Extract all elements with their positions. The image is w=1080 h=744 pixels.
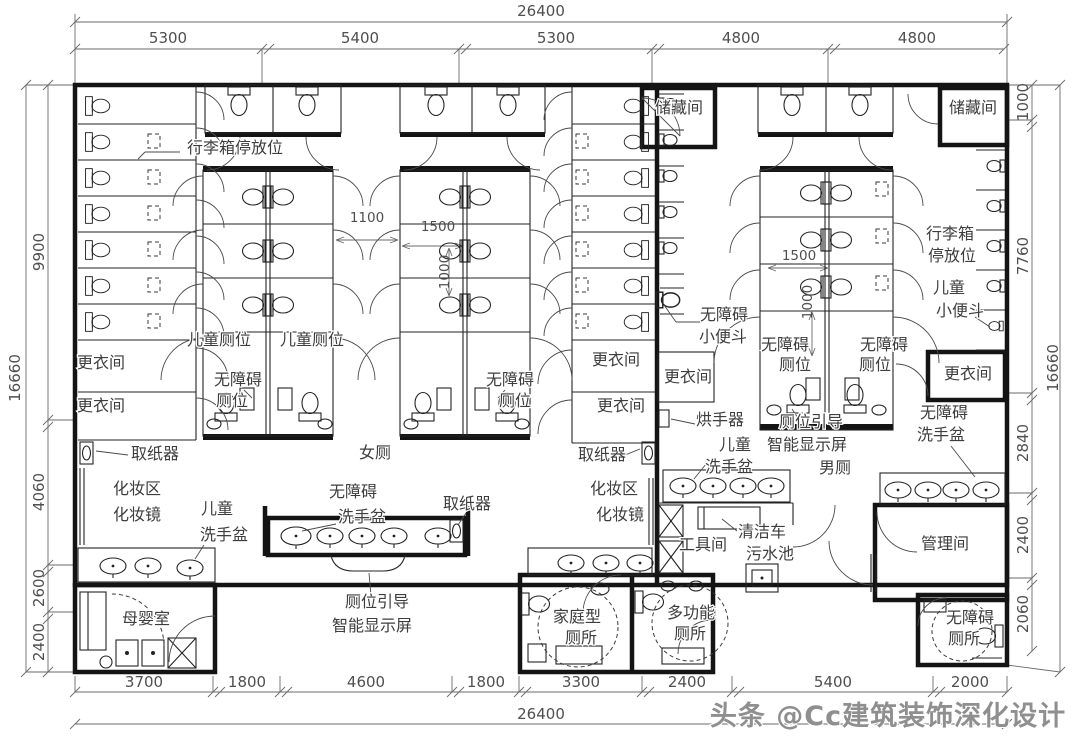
dim-stall-width-w: 1000 [437, 255, 453, 289]
label-paper-dispenser-c: 取纸器 [443, 494, 491, 513]
dim-bottom-overall: 26400 [517, 705, 565, 723]
label-makeup-mirror-c: 化妆镜 [596, 505, 644, 524]
label-guide-screen-w1: 厕位引导 [345, 592, 409, 611]
watermark: 头条 @Cc建筑装饰深化设计 [710, 700, 1066, 732]
label-child-urinal-2: 小便斗 [936, 301, 984, 320]
label-luggage-right-2: 停放位 [928, 246, 976, 265]
label-luggage-parking-left: 行李箱停放位 [187, 138, 283, 157]
dim-stall-width-m: 1000 [800, 285, 816, 319]
label-multifunction-toilet-1: 多功能 [667, 603, 715, 622]
label-acc-stall-m1b: 厕位 [779, 355, 811, 374]
label-storage-right: 储藏间 [949, 98, 997, 117]
label-family-toilet-1: 家庭型 [553, 607, 601, 626]
label-sewage-sink: 污水池 [746, 544, 794, 563]
dim-left-1: 9900 [30, 233, 48, 271]
label-hand-dryer: 烘手器 [696, 410, 744, 429]
dim-top-2: 5400 [341, 29, 379, 47]
dim-left-overall: 16660 [6, 354, 24, 402]
label-acc-stall-m2b: 厕位 [859, 355, 891, 374]
label-acc-stall-m1a: 无障碍 [761, 335, 809, 354]
floor-plan-sheet: 26400 5300 5400 5300 4800 4800 16660 990… [0, 0, 1080, 744]
label-child-urinal-1: 儿童 [933, 278, 965, 297]
label-multifunction-toilet-2: 厕所 [674, 624, 706, 643]
dim-top-overall: 26400 [517, 2, 565, 20]
label-cleaning-cart: 清洁车 [738, 522, 786, 541]
label-makeup-area-l: 化妆区 [113, 479, 161, 498]
label-child-stall-1: 儿童厕位 [187, 330, 251, 349]
dim-bottom-4: 1800 [467, 673, 505, 691]
label-acc-urinal-2: 小便斗 [699, 327, 747, 346]
dim-top-5: 4800 [898, 29, 936, 47]
dim-bottom-3: 4600 [347, 673, 385, 691]
dim-bottom-6: 2400 [668, 673, 706, 691]
label-child-basin-l1: 儿童 [201, 499, 233, 518]
label-accessible-stall-1a: 无障碍 [214, 370, 262, 389]
dim-bottom-2: 1800 [228, 673, 266, 691]
plan-graphics [21, 14, 1065, 729]
label-luggage-right-1: 行李箱 [926, 224, 974, 243]
label-management-room: 管理间 [921, 534, 969, 553]
label-guide-screen-m1: 厕位引导 [779, 412, 843, 431]
label-makeup-mirror-l: 化妆镜 [113, 505, 161, 524]
dim-right-1: 1000 [1014, 83, 1032, 121]
label-guide-screen-w2: 智能显示屏 [332, 616, 412, 635]
label-acc-basin-c1: 无障碍 [329, 482, 377, 501]
dim-left-3: 2600 [30, 569, 48, 607]
label-child-basin-l2: 洗手盆 [200, 525, 248, 544]
label-child-basin-m2: 洗手盆 [705, 457, 753, 476]
dim-bottom-7: 5400 [814, 673, 852, 691]
label-changing-room-l1: 更衣间 [77, 353, 125, 372]
label-acc-stall-m2a: 无障碍 [860, 335, 908, 354]
label-changing-room-m: 更衣间 [664, 367, 712, 386]
dim-right-4: 2400 [1014, 516, 1032, 554]
label-paper-dispenser-c2: 取纸器 [578, 445, 626, 464]
label-child-stall-2: 儿童厕位 [280, 330, 344, 349]
label-mother-baby-room: 母婴室 [122, 609, 170, 628]
dimension-lines [21, 14, 1065, 729]
dim-bottom-8: 2000 [951, 673, 989, 691]
label-makeup-area-c: 化妆区 [590, 479, 638, 498]
label-family-toilet-2: 厕所 [565, 628, 597, 647]
label-women-toilet: 女厕 [359, 443, 391, 462]
label-acc-basin-c2: 洗手盆 [338, 507, 386, 526]
dim-aisle-1100: 1100 [350, 210, 384, 226]
dim-bottom-1: 3700 [125, 673, 163, 691]
dim-top-1: 5300 [149, 29, 187, 47]
dim-right-3: 2840 [1014, 424, 1032, 462]
dim-top-4: 4800 [722, 29, 760, 47]
dim-bottom-5: 3300 [562, 673, 600, 691]
dim-top-3: 5300 [537, 29, 575, 47]
label-accessible-stall-2a: 无障碍 [486, 370, 534, 389]
dim-stall-depth-m: 1500 [782, 248, 816, 264]
label-accessible-stall-2b: 厕位 [499, 391, 531, 410]
label-storage-center: 储藏间 [655, 98, 703, 117]
label-changing-room-c1: 更衣间 [592, 350, 640, 369]
dim-left-2: 4060 [30, 473, 48, 511]
dim-stall-depth-w: 1500 [421, 219, 455, 235]
floor-plan: 26400 5300 5400 5300 4800 4800 16660 990… [0, 0, 1080, 744]
label-guide-screen-m2: 智能显示屏 [767, 435, 847, 454]
label-acc-toilet-br2: 厕所 [948, 629, 980, 648]
dim-right-2: 7760 [1014, 237, 1032, 275]
label-acc-basin-r2: 洗手盆 [917, 425, 965, 444]
label-paper-dispenser-l: 取纸器 [131, 444, 179, 463]
dim-left-4: 2400 [30, 623, 48, 661]
label-men-toilet: 男厕 [819, 458, 851, 477]
label-tool-room: 工具间 [679, 535, 727, 554]
label-acc-basin-r1: 无障碍 [920, 403, 968, 422]
label-changing-room-l2: 更衣间 [77, 396, 125, 415]
dim-right-5: 2060 [1014, 595, 1032, 633]
dim-right-overall: 16660 [1044, 344, 1062, 392]
label-child-basin-m1: 儿童 [719, 435, 751, 454]
label-changing-room-c2: 更衣间 [597, 396, 645, 415]
label-acc-toilet-br1: 无障碍 [946, 608, 994, 627]
label-changing-room-r: 更衣间 [944, 364, 992, 383]
label-accessible-stall-1b: 厕位 [216, 391, 248, 410]
label-acc-urinal-1: 无障碍 [700, 305, 748, 324]
